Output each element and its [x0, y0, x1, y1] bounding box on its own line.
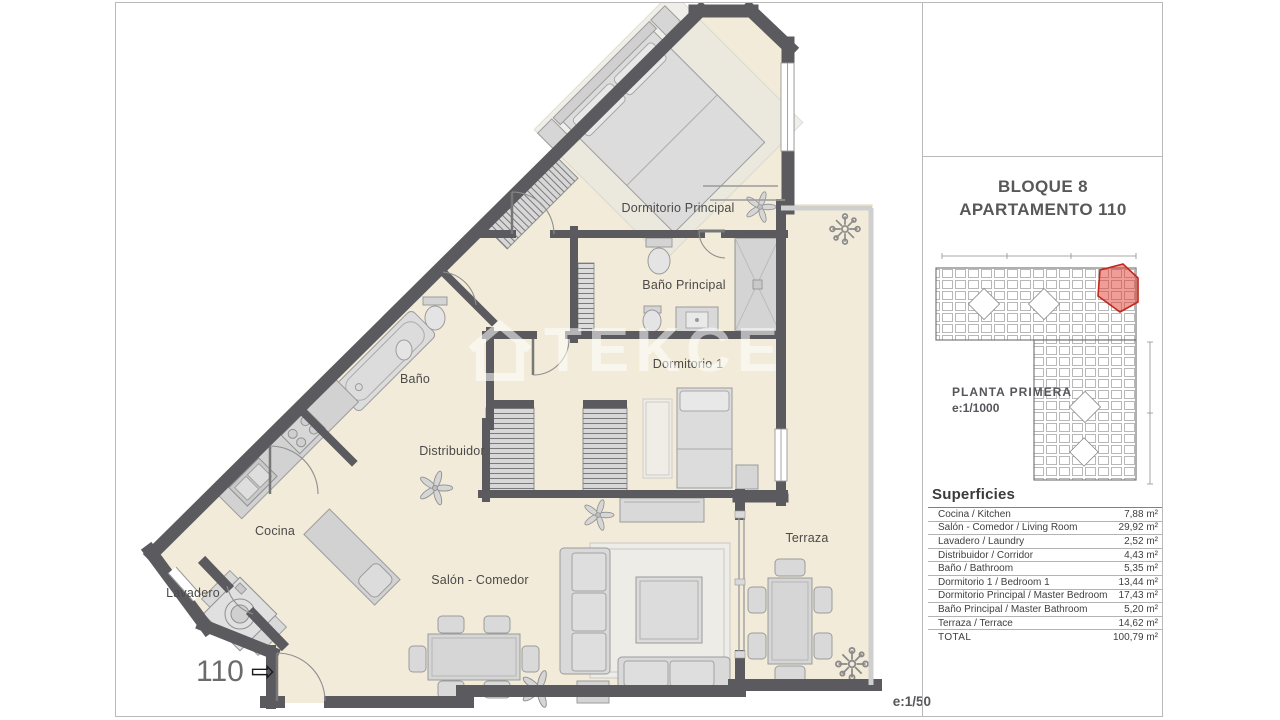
panel-divider-horizontal: [922, 156, 1163, 157]
surface-row-value: 2,52 m²: [1124, 536, 1162, 547]
toilet: [646, 238, 672, 274]
surface-row-value: 5,20 m²: [1124, 604, 1162, 615]
room-label-cocina: Cocina: [255, 524, 295, 538]
room-label-lavadero: Lavadero: [166, 586, 220, 600]
towel-radiator: [578, 263, 594, 333]
dining-table: [428, 634, 520, 680]
nightstand: [736, 465, 758, 489]
vanity-sink: [676, 307, 718, 333]
room-label-salon-comedor: Salón - Comedor: [431, 573, 529, 587]
shower: [735, 238, 779, 331]
surface-row: Dormitorio 1 / Bedroom 1 13,44 m²: [928, 576, 1162, 590]
plan-document: Dormitorio Principal Baño Principal Dorm…: [115, 2, 1163, 717]
surface-row: Baño Principal / Master Bathroom 5,20 m²: [928, 603, 1162, 617]
surface-row: Distribuidor / Corridor 4,43 m²: [928, 549, 1162, 563]
tv-bench: [620, 498, 704, 522]
window: [781, 63, 794, 151]
surface-row: Dormitorio Principal / Master Bedroom 17…: [928, 590, 1162, 604]
surface-row-label: Dormitorio 1 / Bedroom 1: [928, 577, 1050, 588]
surface-row-label: Terraza / Terrace: [928, 618, 1013, 629]
surface-row-value: 100,79 m²: [1113, 632, 1162, 643]
surface-row: Cocina / Kitchen 7,88 m²: [928, 508, 1162, 522]
plan-scale-label: e:1/50: [851, 694, 931, 709]
surface-row-label: Dormitorio Principal / Master Bedroom: [928, 590, 1108, 601]
surface-row-label: Salón - Comedor / Living Room: [928, 522, 1078, 533]
room-label-terraza: Terraza: [785, 531, 828, 545]
terrace-table: [768, 578, 812, 664]
coffee-table: [636, 577, 702, 643]
surface-row-label: TOTAL: [928, 632, 971, 643]
surface-row: Lavadero / Laundry 2,52 m²: [928, 535, 1162, 549]
surface-row: TOTAL 100,79 m²: [928, 630, 1162, 644]
bedroom1-furniture: [486, 388, 758, 491]
surfaces-rows: Cocina / Kitchen 7,88 m² Salón - Comedor…: [928, 508, 1162, 644]
surface-row-value: 13,44 m²: [1119, 577, 1162, 588]
site-plan-scale-label: e:1/1000: [952, 401, 1000, 415]
runner-rug: [643, 399, 672, 478]
surface-row-label: Baño Principal / Master Bathroom: [928, 604, 1088, 615]
room-label-bano: Baño: [400, 372, 430, 386]
room-label-bano-principal: Baño Principal: [642, 278, 725, 292]
surface-row-value: 7,88 m²: [1124, 509, 1162, 520]
apartment-number: 110 ⇨: [196, 655, 275, 689]
surface-row-value: 14,62 m²: [1119, 618, 1162, 629]
single-bed: [677, 388, 732, 488]
panel-divider-vertical: [922, 3, 923, 717]
surface-row-label: Lavadero / Laundry: [928, 536, 1024, 547]
sofa: [560, 548, 610, 674]
surface-row-label: Baño / Bathroom: [928, 563, 1013, 574]
surfaces-heading: Superficies: [928, 486, 1162, 508]
surface-row-value: 5,35 m²: [1124, 563, 1162, 574]
toilet: [423, 297, 447, 330]
site-plan-floor-label: PLANTA PRIMERA: [952, 385, 1072, 399]
surface-row-value: 29,92 m²: [1119, 522, 1162, 533]
washbasin: [396, 340, 412, 360]
surface-row: Terraza / Terrace 14,62 m²: [928, 617, 1162, 631]
room-label-dormitorio-1: Dormitorio 1: [653, 357, 723, 371]
surface-row: Salón - Comedor / Living Room 29,92 m²: [928, 522, 1162, 536]
apartment-number-text: 110: [196, 655, 244, 689]
panel-title-line1: BLOQUE 8: [922, 175, 1163, 198]
room-label-dormitorio-principal: Dormitorio Principal: [621, 201, 734, 215]
surface-row-label: Cocina / Kitchen: [928, 509, 1011, 520]
surface-row-label: Distribuidor / Corridor: [928, 550, 1033, 561]
surface-row: Baño / Bathroom 5,35 m²: [928, 562, 1162, 576]
surfaces-table: Superficies Cocina / Kitchen 7,88 m² Sal…: [928, 486, 1162, 644]
wardrobe: [583, 400, 627, 491]
room-label-distribuidor: Distribuidor: [419, 444, 485, 458]
panel-title: BLOQUE 8 APARTAMENTO 110: [922, 175, 1163, 221]
surface-row-value: 17,43 m²: [1119, 590, 1162, 601]
surface-row-value: 4,43 m²: [1124, 550, 1162, 561]
panel-title-line2: APARTAMENTO 110: [922, 198, 1163, 221]
site-plan-svg: PLANTA PRIMERA e:1/1000: [928, 246, 1163, 491]
window: [775, 429, 787, 481]
bidet: [643, 306, 661, 332]
site-plan-building: [936, 264, 1138, 480]
entrance-arrow-icon: ⇨: [251, 658, 275, 687]
